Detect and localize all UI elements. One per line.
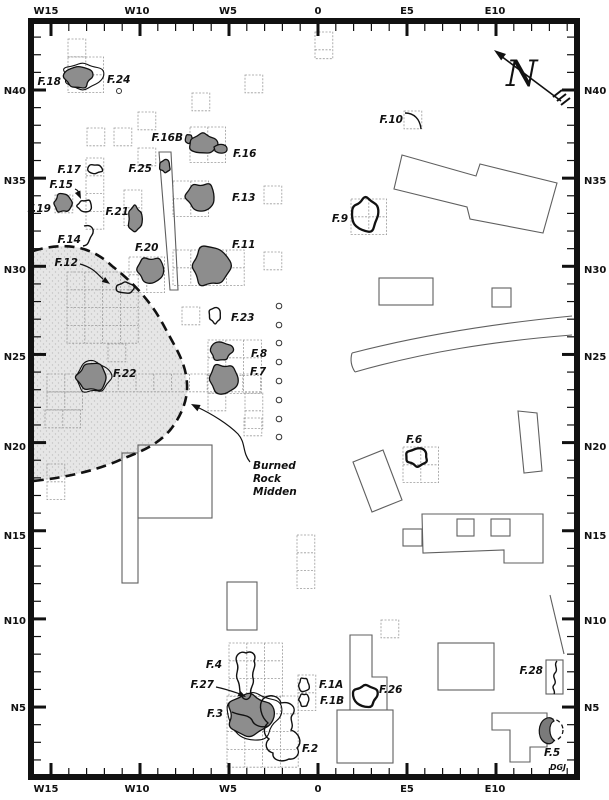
axis-label-left: N40 (4, 86, 26, 97)
axis-label-left: N25 (4, 352, 26, 363)
axis-label-left: N5 (11, 703, 26, 714)
midden-label: Burned (253, 460, 296, 472)
axis-label-right: N30 (584, 265, 606, 276)
axis-label-right: N25 (584, 352, 606, 363)
posthole-circle (276, 303, 282, 309)
feature-label: F.24 (107, 74, 130, 86)
axis-label-left: N20 (4, 442, 26, 453)
axis-label-right: N10 (584, 616, 606, 627)
axis-label-left: N35 (4, 176, 26, 187)
feature-label: F.23 (231, 312, 254, 324)
feature-blob (214, 144, 227, 153)
posthole-circle (276, 340, 282, 346)
feature-label: F.17 (58, 164, 82, 176)
feature-label: F.1B (320, 695, 344, 707)
feature-label: F.25 (129, 163, 152, 175)
feature-label: F.22 (113, 368, 136, 380)
feature-label: F.2 (302, 743, 318, 755)
axis-label-right: N5 (584, 703, 599, 714)
axis-label-right: N20 (584, 442, 606, 453)
posthole-circle (276, 434, 282, 440)
credit-initials: DGJ (550, 763, 566, 772)
feature-label: F.18 (38, 76, 61, 88)
feature-label: F.1A (319, 679, 343, 691)
feature-label: F.9 (332, 213, 348, 225)
axis-label-right: N35 (584, 176, 606, 187)
site-map: BurnedRockMiddenF.18F.24F.16BF.16F.25F.1… (0, 0, 609, 800)
feature-label: F.16 (233, 148, 256, 160)
feature-label: F.28 (520, 665, 543, 677)
feature-label: F.7 (250, 366, 267, 378)
axis-label-top: W10 (125, 6, 150, 17)
axis-label-top: E5 (400, 6, 414, 17)
axis-label-left: N15 (4, 531, 26, 542)
feature-label: F.13 (232, 192, 255, 204)
feature-label: F.27 (191, 679, 215, 691)
feature-label: F.16B (152, 132, 183, 144)
axis-label-top: W15 (34, 6, 59, 17)
feature-label: F.12 (55, 257, 78, 269)
feature-label: F.14 (58, 234, 81, 246)
axis-label-bottom: E10 (485, 784, 506, 795)
axis-label-bottom: W10 (125, 784, 150, 795)
feature-label: F.6 (406, 434, 422, 446)
feature-label: F.5 (544, 747, 560, 759)
posthole-circle (276, 359, 282, 365)
feature-F24: F.24 (107, 74, 130, 86)
axis-label-left: N10 (4, 616, 26, 627)
feature-label: F.26 (379, 684, 402, 696)
axis-label-bottom: W5 (219, 784, 237, 795)
feature-label: F.11 (232, 239, 255, 251)
north-letter: N (505, 54, 539, 95)
feature-label: F.8 (251, 348, 267, 360)
axis-label-right: N15 (584, 531, 606, 542)
feature-label: F.20 (135, 242, 158, 254)
midden-label: Midden (253, 486, 297, 498)
axis-label-bottom: 0 (315, 784, 322, 795)
feature-label: F.15 (50, 179, 73, 191)
midden-label: Rock (253, 473, 282, 485)
posthole-circle (276, 416, 282, 422)
posthole-circle (117, 89, 122, 94)
axis-label-bottom: W15 (34, 784, 59, 795)
feature-label: F.3 (207, 708, 223, 720)
posthole-circle (276, 397, 282, 403)
feature-label: F.4 (206, 659, 222, 671)
feature-label: F.10 (380, 114, 403, 126)
axis-label-top: 0 (315, 6, 322, 17)
axis-label-top: W5 (219, 6, 237, 17)
axis-label-top: E10 (485, 6, 506, 17)
feature-label: F.21 (106, 206, 129, 218)
axis-label-left: N30 (4, 265, 26, 276)
axis-label-bottom: E5 (400, 784, 414, 795)
posthole-circle (276, 378, 282, 384)
map-page: BurnedRockMiddenF.18F.24F.16BF.16F.25F.1… (0, 0, 609, 800)
axis-label-right: N40 (584, 86, 606, 97)
posthole-circle (276, 322, 282, 328)
